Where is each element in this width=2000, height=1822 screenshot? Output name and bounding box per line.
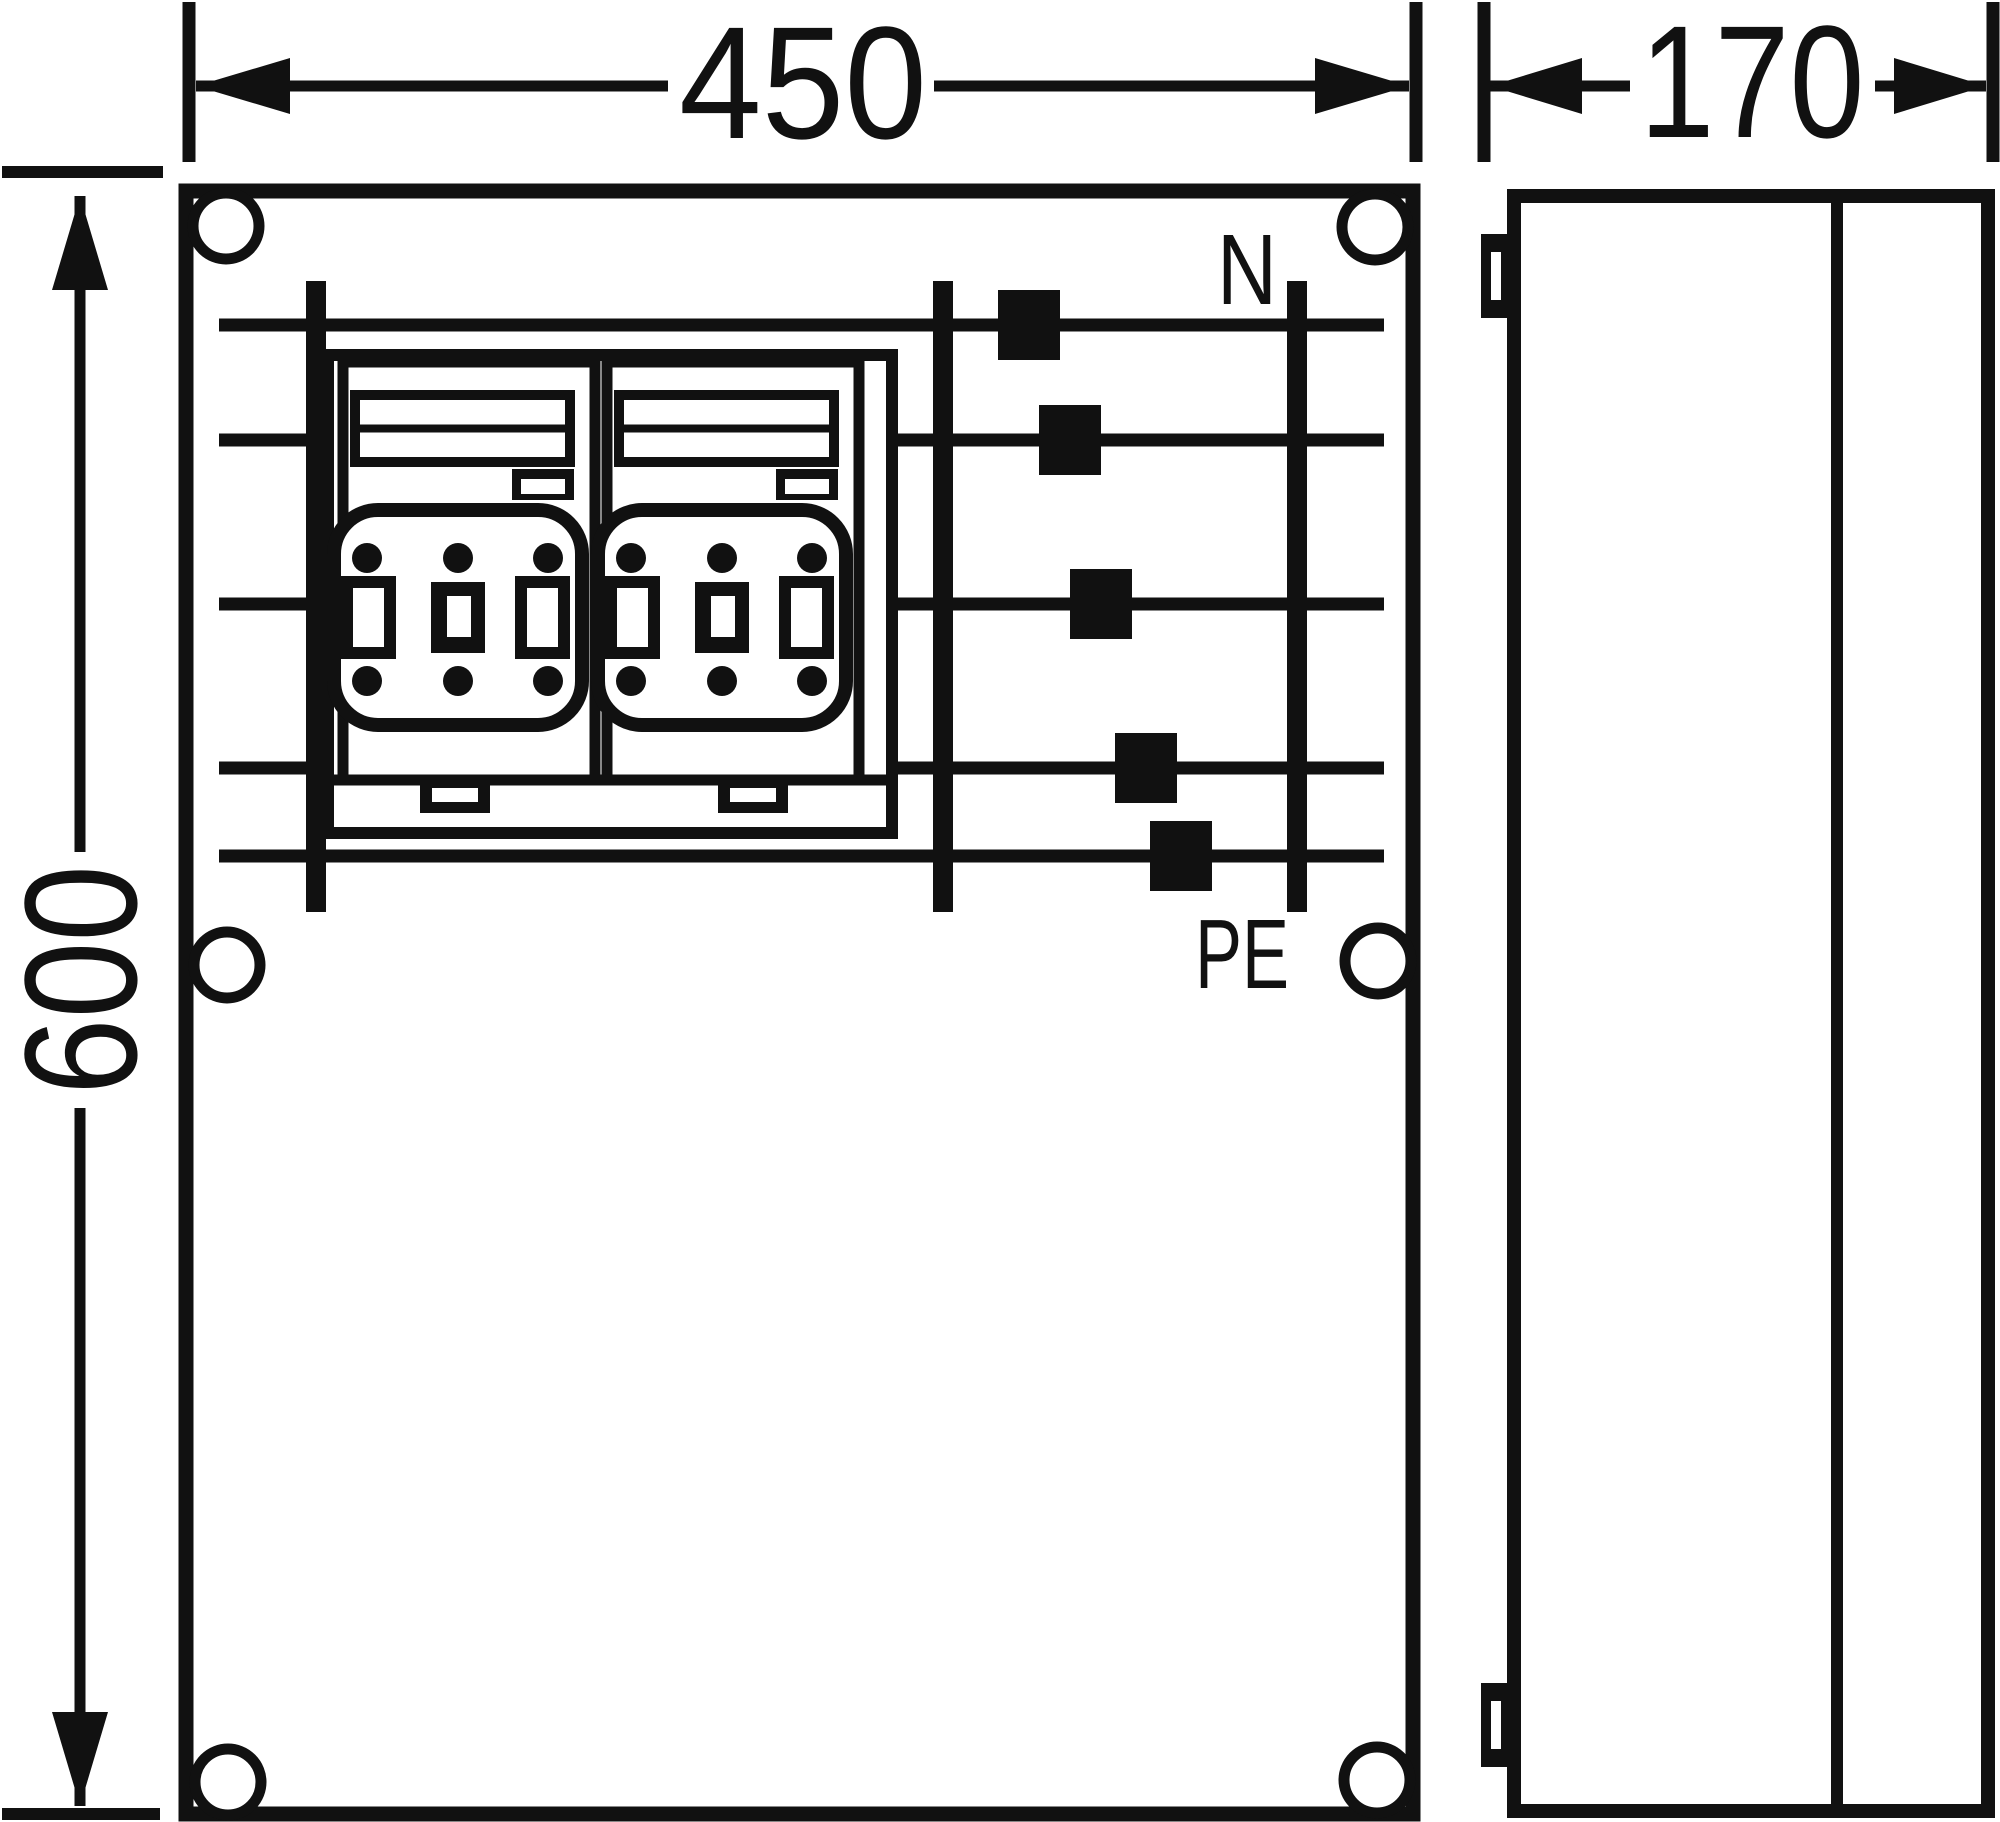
dimension-width: 450 [189,0,1416,172]
pe-label: PE [1195,899,1289,1009]
front-view: N PE [186,191,1413,1815]
mounting-screw-middle-left [194,932,260,998]
arrowhead-right-icon [1315,58,1409,114]
busbar-tap-connector [1070,569,1132,639]
drawing-page: 450 170 600 N PE [0,0,2000,1822]
fuse-unit-2-tab-slot [730,788,776,802]
mounting-screw-top-left [193,193,259,259]
side-view [1481,196,1988,1811]
hinge-top-slot [1491,252,1501,300]
dimension-depth: 170 [1484,0,1993,171]
arrowhead-left-icon [196,58,290,114]
mounting-screw-middle-right [1345,928,1411,994]
busbar-tap-connector [1039,405,1101,475]
width-value: 450 [679,0,927,172]
busbar-tap-connector [1150,821,1212,891]
enclosure-technical-drawing: 450 170 600 N PE [0,0,2000,1822]
mounting-screw-bottom-right [1344,1747,1410,1813]
fuse-switch-unit-2 [598,362,859,780]
arrowhead-right-icon [1894,58,1986,114]
depth-value: 170 [1640,0,1865,171]
dimension-height: 600 [0,172,170,1814]
hinge-bottom-slot [1491,1701,1501,1749]
height-value: 600 [0,865,170,1095]
fuse-unit-1-tab-slot [432,788,478,802]
fuse-switch-assembly [328,355,892,833]
mounting-screw-top-right [1342,194,1408,260]
enclosure-side-panel [1514,196,1988,1811]
arrowhead-down-icon [52,1712,108,1806]
arrowhead-up-icon [52,196,108,290]
arrowhead-left-icon [1490,58,1582,114]
busbar-tap-connector [998,290,1060,360]
neutral-label: N [1217,214,1277,326]
fuse-switch-unit-1 [334,362,595,780]
mounting-screw-bottom-left [195,1749,261,1815]
busbar-tap-connector [1115,733,1177,803]
